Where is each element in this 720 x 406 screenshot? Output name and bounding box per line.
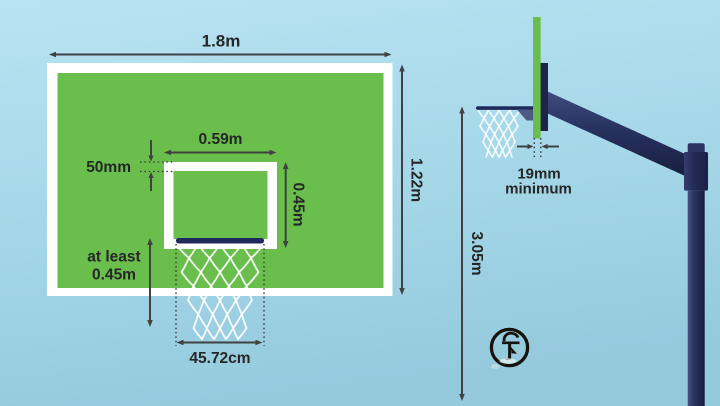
svg-text:3.05m: 3.05m — [468, 232, 485, 276]
svg-text:50mm: 50mm — [86, 159, 131, 176]
svg-text:minimum: minimum — [505, 181, 572, 198]
svg-text:0.59m: 0.59m — [199, 131, 243, 148]
svg-text:0.45m: 0.45m — [290, 183, 307, 227]
svg-text:45.72cm: 45.72cm — [189, 350, 250, 367]
svg-text:1.22m: 1.22m — [408, 158, 425, 202]
svg-text:0.45m: 0.45m — [92, 267, 136, 284]
svg-text:1.8m: 1.8m — [202, 32, 241, 51]
svg-text:at least: at least — [87, 249, 140, 266]
